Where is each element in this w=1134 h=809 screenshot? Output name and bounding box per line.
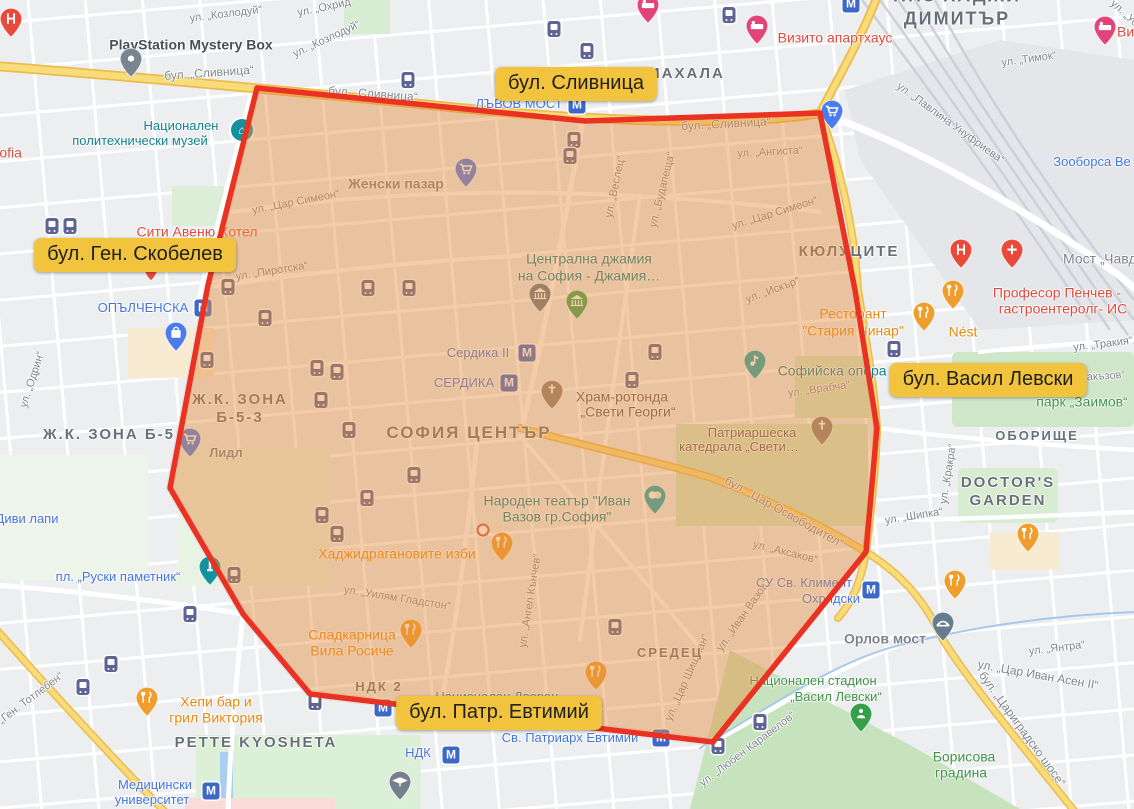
- street-callout: бул. Васил Левски: [890, 363, 1087, 397]
- street-callouts-layer: бул. Сливницабул. Ген. Скобелевбул. Васи…: [0, 0, 1134, 809]
- street-callout: бул. Ген. Скобелев: [34, 238, 236, 272]
- street-callout: бул. Патр. Евтимий: [396, 696, 602, 730]
- map-canvas[interactable]: ул. „Козлодуй“ул. „Козлодуй“ул. „Охрид“б…: [0, 0, 1134, 809]
- street-callout: бул. Сливница: [495, 67, 657, 101]
